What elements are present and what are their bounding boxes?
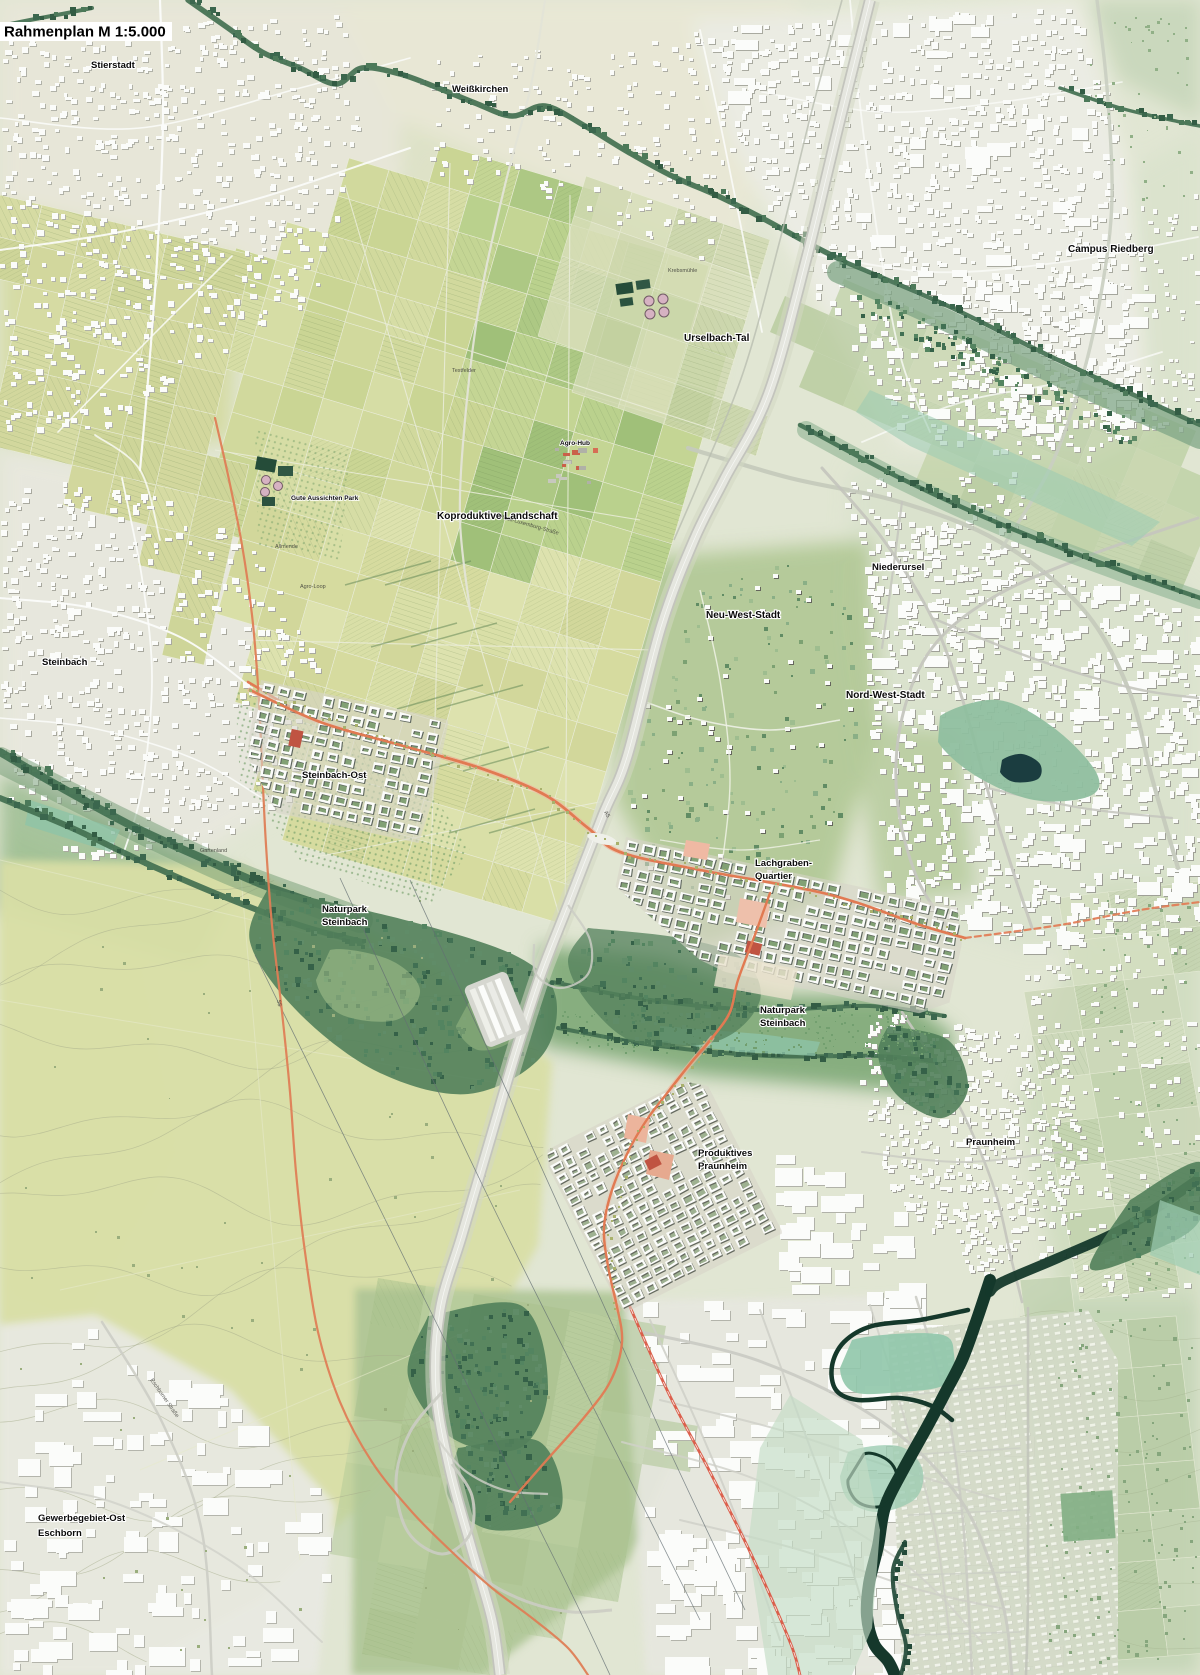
svg-text:Nord-West-Stadt: Nord-West-Stadt (846, 690, 925, 701)
svg-text:Stierstadt: Stierstadt (91, 60, 136, 71)
svg-text:Allmende: Allmende (275, 544, 298, 550)
svg-text:Campus Riedberg: Campus Riedberg (1068, 244, 1154, 255)
svg-text:Steinbach: Steinbach (322, 917, 368, 928)
svg-text:Krebsmühle: Krebsmühle (668, 268, 697, 274)
svg-text:Agro-Loop: Agro-Loop (300, 584, 326, 590)
svg-text:Niederursel: Niederursel (872, 562, 924, 573)
svg-text:Testfelder: Testfelder (452, 368, 476, 374)
svg-text:Naturpark: Naturpark (322, 904, 368, 915)
svg-text:Urselbach-Tal: Urselbach-Tal (684, 333, 750, 344)
svg-text:Quartier: Quartier (755, 871, 792, 882)
svg-text:Praunheim: Praunheim (966, 1137, 1015, 1148)
svg-text:Koproduktive Landschaft: Koproduktive Landschaft (437, 511, 558, 522)
svg-text:Steinbach: Steinbach (42, 657, 88, 668)
svg-text:Neu-West-Stadt: Neu-West-Stadt (706, 610, 781, 621)
svg-text:S5: S5 (275, 999, 282, 1007)
svg-text:Eschborn: Eschborn (38, 1528, 82, 1539)
svg-text:Weißkirchen: Weißkirchen (452, 84, 509, 95)
svg-text:Produktives: Produktives (698, 1148, 752, 1159)
svg-text:Gewerbegebiet-Ost: Gewerbegebiet-Ost (38, 1513, 126, 1524)
svg-text:Lachgraben-: Lachgraben- (755, 858, 812, 869)
svg-text:Steinbach: Steinbach (760, 1018, 806, 1029)
svg-text:Steinbach-Ost: Steinbach-Ost (302, 770, 367, 781)
svg-text:Praunheim: Praunheim (698, 1161, 747, 1172)
svg-text:Agro-Hub: Agro-Hub (560, 440, 590, 447)
svg-text:Gartenland: Gartenland (200, 848, 227, 854)
svg-text:Rahmenplan M 1:5.000: Rahmenplan M 1:5.000 (4, 24, 166, 41)
svg-text:Naturpark: Naturpark (760, 1005, 806, 1016)
svg-text:Gute Aussichten Park: Gute Aussichten Park (291, 495, 359, 502)
